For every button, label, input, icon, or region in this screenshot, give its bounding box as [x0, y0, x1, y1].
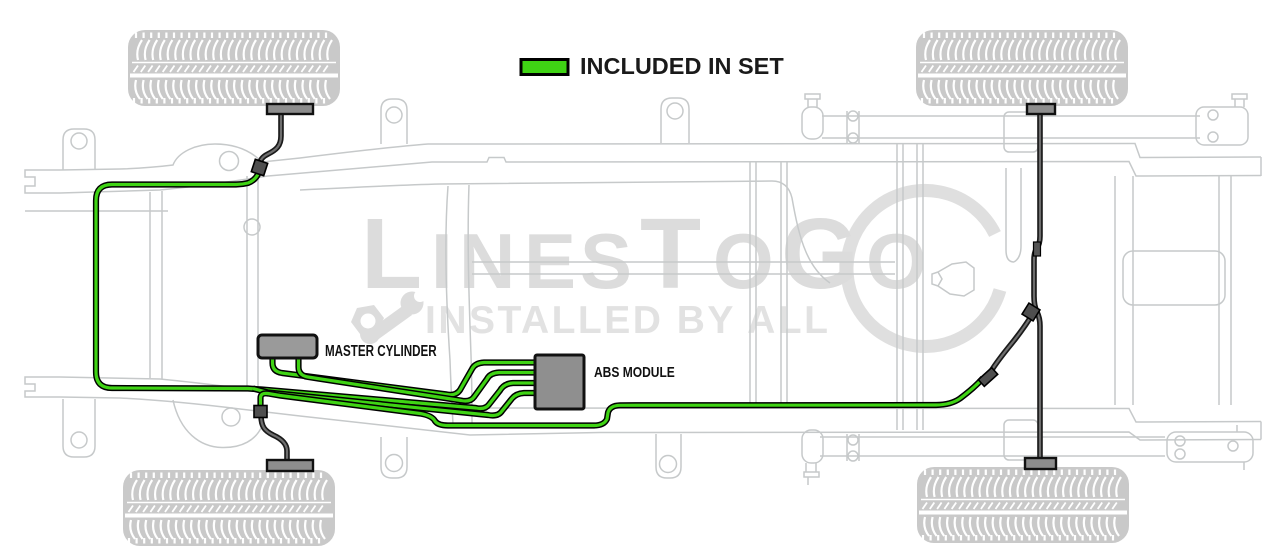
svg-text:T: T	[640, 198, 701, 310]
svg-text:I: I	[431, 217, 453, 305]
svg-text:S: S	[580, 217, 632, 305]
svg-text:G: G	[781, 198, 859, 310]
svg-text:INCLUDED IN SET: INCLUDED IN SET	[580, 53, 784, 79]
svg-text:INSTALLED BY ALL: INSTALLED BY ALL	[425, 299, 830, 342]
svg-text:MASTER CYLINDER: MASTER CYLINDER	[325, 342, 437, 359]
svg-text:O: O	[713, 217, 774, 305]
svg-text:E: E	[524, 217, 576, 305]
svg-text:N: N	[459, 217, 515, 305]
svg-text:ABS MODULE: ABS MODULE	[594, 364, 675, 380]
